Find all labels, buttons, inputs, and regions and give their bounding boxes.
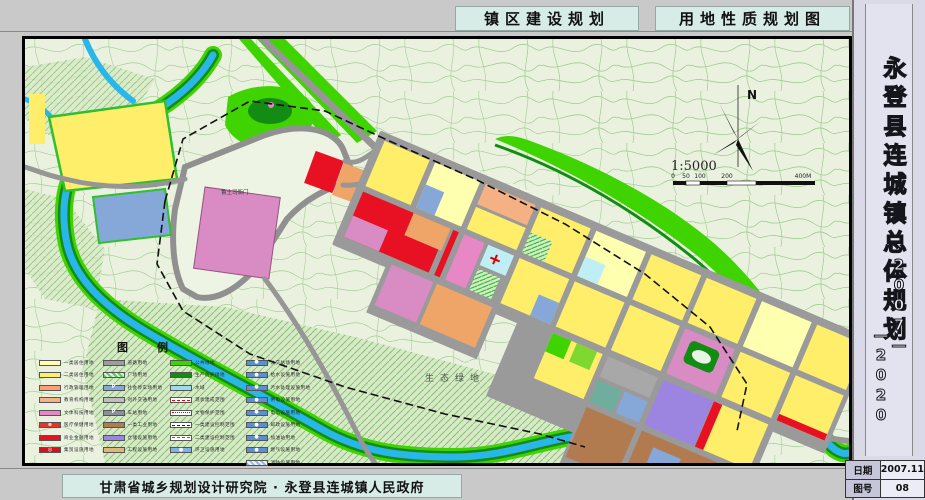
sheet-number-label: 图号 bbox=[846, 479, 881, 498]
legend-item: 仓储设施用地 bbox=[103, 434, 167, 441]
legend-label: 仓储设施用地 bbox=[128, 435, 158, 441]
title-block: 日期 2007.11 图号 08 bbox=[845, 460, 925, 498]
legend-label: 文物保护范围 bbox=[195, 410, 225, 416]
legend-label: 道路用地 bbox=[128, 360, 148, 366]
legend-swatch bbox=[39, 397, 61, 403]
legend-item: 生产防护绿地 bbox=[170, 372, 241, 379]
top-band: 镇区建设规划 用地性质规划图 bbox=[0, 0, 852, 32]
legend-swatch bbox=[103, 397, 125, 403]
legend-item: 教育机构用地 bbox=[39, 397, 99, 404]
heritage-site-label: 鲁土司衙门 bbox=[221, 188, 249, 196]
bottom-band: 甘肃省城乡规划设计研究院 · 永登县连城镇人民政府 bbox=[0, 468, 852, 500]
legend-swatch bbox=[103, 422, 125, 428]
legend-label: 污水处理设施用地 bbox=[271, 385, 311, 391]
legend-swatch: ● bbox=[170, 447, 192, 453]
legend-swatch bbox=[170, 410, 192, 416]
legend-label: 二类建设控制范围 bbox=[195, 435, 235, 441]
parking-parcel bbox=[93, 189, 171, 243]
legend-item: P社会停车场用地 bbox=[103, 384, 167, 391]
legend-item: ●加油站用地 bbox=[246, 434, 312, 441]
scale-tick: 100 bbox=[694, 173, 706, 180]
legend-label: 工程设施用地 bbox=[128, 447, 158, 453]
legend-item: 对外交通用地 bbox=[103, 397, 167, 404]
legend-item: ●邮政设施用地 bbox=[246, 422, 312, 429]
scale-tick: 0 bbox=[671, 173, 675, 180]
legend-item: 二类居住用地 bbox=[39, 372, 99, 379]
legend-swatch: ● bbox=[246, 397, 268, 403]
scale-text: 1:5000 bbox=[671, 159, 717, 174]
scale-tick: 50 bbox=[682, 173, 690, 180]
drawing-sheet: 镇区建设规划 用地性质规划图 bbox=[0, 0, 925, 500]
sheet-number-value: 08 bbox=[880, 479, 924, 498]
drawing-title-panel: 永登县连城镇总体规划 2007— —2020 bbox=[865, 4, 913, 456]
legend: 图 例 一类居住用地二类居住用地行政管理用地教育机构用地文体科技用地⊕医疗保健用… bbox=[39, 339, 311, 472]
legend-item: 工程设施用地 bbox=[103, 447, 167, 454]
credit: 甘肃省城乡规划设计研究院 · 永登县连城镇人民政府 bbox=[62, 474, 462, 498]
legend-label: 生产防护绿地 bbox=[195, 372, 225, 378]
legend-label: 给水设施用地 bbox=[271, 372, 301, 378]
legend-item: 行政管理用地 bbox=[39, 384, 99, 391]
legend-item: ●燃气设施用地 bbox=[246, 447, 312, 454]
north-label: N bbox=[747, 88, 757, 102]
legend-item: 一类工业用地 bbox=[103, 422, 167, 429]
sheet-title: 用地性质规划图 bbox=[655, 6, 850, 31]
legend-label: 对外交通用地 bbox=[128, 397, 158, 403]
legend-item: 消防设施用地 bbox=[246, 459, 312, 466]
legend-column: ●公交站场用地●给水设施用地●污水处理设施用地●供电设施用地●电信设施用地●邮政… bbox=[246, 359, 312, 472]
legend-label: 文体科技用地 bbox=[64, 410, 94, 416]
legend-swatch bbox=[170, 422, 192, 428]
legend-item: 商业金融用地 bbox=[39, 434, 99, 441]
legend-label: 水域 bbox=[195, 385, 205, 391]
legend-swatch bbox=[39, 385, 61, 391]
legend-item: ◎集贸设施用地 bbox=[39, 447, 99, 454]
plan-period-end: —2020 bbox=[872, 326, 890, 426]
legend-column: 道路用地广场用地P社会停车场用地对外交通用地P车站用地一类工业用地仓储设施用地工… bbox=[103, 359, 167, 472]
legend-swatch: ● bbox=[246, 422, 268, 428]
date-value: 2007.11 bbox=[880, 461, 924, 480]
eco-green-label: 生态绿地 bbox=[425, 372, 485, 384]
legend-item: 广场用地 bbox=[103, 372, 167, 379]
legend-swatch: ● bbox=[246, 410, 268, 416]
legend-label: 广场用地 bbox=[128, 372, 148, 378]
legend-swatch bbox=[170, 372, 192, 378]
legend-item: ●环卫设施用地 bbox=[170, 447, 241, 454]
legend-label: 邮政设施用地 bbox=[271, 422, 301, 428]
legend-column: 一类居住用地二类居住用地行政管理用地教育机构用地文体科技用地⊕医疗保健用地商业金… bbox=[39, 359, 99, 472]
legend-label: 社会停车场用地 bbox=[128, 385, 163, 391]
legend-label: 供电设施用地 bbox=[271, 397, 301, 403]
legend-swatch: ● bbox=[246, 372, 268, 378]
legend-column: 公共绿地生产防护绿地水域现状建成范围文物保护范围一类建设控制范围二类建设控制范围… bbox=[170, 359, 241, 472]
legend-item: 文体科技用地 bbox=[39, 409, 99, 416]
legend-swatch bbox=[170, 435, 192, 441]
legend-item: P车站用地 bbox=[103, 409, 167, 416]
legend-item: ●公交站场用地 bbox=[246, 359, 312, 366]
legend-label: 一类建设控制范围 bbox=[195, 422, 235, 428]
legend-label: 现状建成范围 bbox=[195, 397, 225, 403]
legend-item: ●供电设施用地 bbox=[246, 397, 312, 404]
legend-label: 公共绿地 bbox=[195, 360, 215, 366]
legend-item: 文物保护范围 bbox=[170, 409, 241, 416]
scale-tick: 200 bbox=[721, 173, 733, 180]
legend-swatch bbox=[39, 360, 61, 366]
legend-swatch bbox=[170, 397, 192, 403]
legend-label: 一类居住用地 bbox=[64, 360, 94, 366]
plan-category-title: 镇区建设规划 bbox=[455, 6, 639, 31]
legend-swatch bbox=[103, 435, 125, 441]
legend-swatch: ● bbox=[246, 385, 268, 391]
legend-label: 公交站场用地 bbox=[271, 360, 301, 366]
legend-swatch bbox=[103, 372, 125, 378]
legend-swatch bbox=[170, 360, 192, 366]
map-area: N 1:5000 0 50 100 200 400M 生态绿地 鲁土司衙门 bbox=[22, 36, 852, 466]
date-label: 日期 bbox=[846, 461, 881, 480]
legend-columns: 一类居住用地二类居住用地行政管理用地教育机构用地文体科技用地⊕医疗保健用地商业金… bbox=[39, 359, 311, 472]
legend-swatch: ● bbox=[246, 435, 268, 441]
legend-swatch bbox=[103, 447, 125, 453]
legend-label: 商业金融用地 bbox=[64, 435, 94, 441]
legend-label: 消防设施用地 bbox=[271, 460, 301, 466]
legend-label: 教育机构用地 bbox=[64, 397, 94, 403]
legend-item: 道路用地 bbox=[103, 359, 167, 366]
legend-swatch bbox=[103, 360, 125, 366]
legend-item: 一类建设控制范围 bbox=[170, 422, 241, 429]
legend-swatch: P bbox=[103, 410, 125, 416]
legend-swatch bbox=[39, 435, 61, 441]
legend-swatch: ● bbox=[246, 447, 268, 453]
legend-swatch bbox=[39, 410, 61, 416]
legend-swatch bbox=[170, 385, 192, 391]
legend-swatch bbox=[39, 372, 61, 378]
legend-item: 二类建设控制范围 bbox=[170, 434, 241, 441]
legend-swatch: ◎ bbox=[39, 447, 61, 453]
legend-label: 电信设施用地 bbox=[271, 410, 301, 416]
legend-label: 燃气设施用地 bbox=[271, 447, 301, 453]
legend-label: 行政管理用地 bbox=[64, 385, 94, 391]
legend-item: ●电信设施用地 bbox=[246, 409, 312, 416]
legend-label: 加油站用地 bbox=[271, 435, 296, 441]
legend-label: 医疗保健用地 bbox=[64, 422, 94, 428]
legend-item: ⊕医疗保健用地 bbox=[39, 422, 99, 429]
legend-swatch bbox=[246, 460, 268, 466]
legend-title: 图 例 bbox=[117, 339, 311, 355]
plan-period-start: 2007— bbox=[890, 256, 908, 356]
legend-swatch: ● bbox=[246, 360, 268, 366]
legend-item: 公共绿地 bbox=[170, 359, 241, 366]
legend-label: 一类工业用地 bbox=[128, 422, 158, 428]
legend-item: 一类居住用地 bbox=[39, 359, 99, 366]
legend-item: 水域 bbox=[170, 384, 241, 391]
legend-label: 环卫设施用地 bbox=[195, 447, 225, 453]
legend-swatch: P bbox=[103, 385, 125, 391]
legend-label: 车站用地 bbox=[128, 410, 148, 416]
scale-tick: 400M bbox=[795, 173, 812, 180]
legend-label: 二类居住用地 bbox=[64, 372, 94, 378]
legend-item: 现状建成范围 bbox=[170, 397, 241, 404]
legend-label: 集贸设施用地 bbox=[64, 447, 94, 453]
legend-item: ●给水设施用地 bbox=[246, 372, 312, 379]
right-sidebar: 永登县连城镇总体规划 2007— —2020 bbox=[852, 0, 925, 500]
legend-item: ●污水处理设施用地 bbox=[246, 384, 312, 391]
heritage-parcel bbox=[194, 187, 281, 279]
legend-swatch: ⊕ bbox=[39, 422, 61, 428]
